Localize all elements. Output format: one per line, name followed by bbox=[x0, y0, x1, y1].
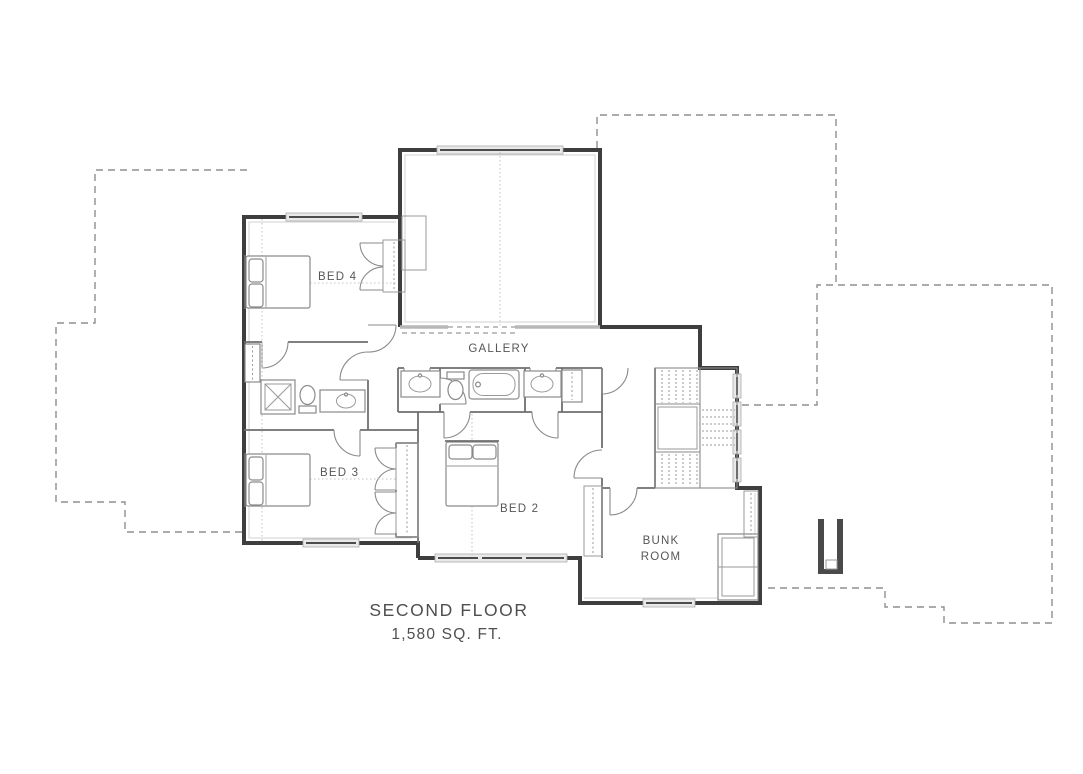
linen-closet bbox=[562, 370, 582, 402]
gallery-label: GALLERY bbox=[468, 343, 529, 355]
door-bath-linen bbox=[262, 342, 288, 368]
window-bed4 bbox=[286, 213, 362, 221]
door-hall-vestibule bbox=[602, 368, 628, 394]
vanity-sink2-icon bbox=[524, 371, 561, 397]
bunk-room-label-line2: ROOM bbox=[641, 551, 682, 563]
door-bed3-closet bbox=[375, 448, 396, 534]
bed2-label: BED 2 bbox=[500, 503, 539, 515]
door-bed2-jackjill2 bbox=[532, 412, 558, 438]
door-bed2-jackjill bbox=[444, 412, 470, 438]
staircase bbox=[655, 368, 737, 488]
room-labels: BED 4 BED 3 BED 2 GALLERY BUNK ROOM bbox=[318, 271, 681, 563]
window-bed3 bbox=[303, 539, 359, 547]
linen-closet2 bbox=[245, 344, 260, 382]
window-bunk-south bbox=[643, 599, 695, 607]
bunk-closet bbox=[744, 491, 758, 537]
bed4-label: BED 4 bbox=[318, 271, 357, 283]
title-block: SECOND FLOOR 1,580 SQ. FT. bbox=[369, 600, 528, 643]
vanity-sink3-icon bbox=[320, 390, 365, 412]
chimney bbox=[818, 519, 843, 574]
roofline-dashed bbox=[56, 115, 1052, 623]
floor-plan-canvas: BED 4 BED 3 BED 2 GALLERY BUNK ROOM SECO… bbox=[0, 0, 1083, 774]
bunk-bed-icon bbox=[718, 534, 758, 600]
bed3-closet bbox=[396, 443, 418, 537]
media-niche bbox=[402, 216, 426, 270]
bed2-closet bbox=[584, 486, 602, 556]
door-hall-bath bbox=[340, 352, 368, 380]
bed3-label: BED 3 bbox=[320, 467, 359, 479]
bed2-bed-icon bbox=[445, 441, 499, 506]
vanity-sink-icon bbox=[401, 371, 440, 397]
door-bed4 bbox=[368, 325, 396, 352]
bed3-bed-icon bbox=[245, 453, 310, 507]
floor-plan-page: BED 4 BED 3 BED 2 GALLERY BUNK ROOM SECO… bbox=[0, 0, 1083, 774]
bed4-bed-icon bbox=[245, 255, 310, 309]
toilet-icon bbox=[447, 372, 464, 400]
bunk-room-label-line1: BUNK bbox=[643, 535, 680, 547]
toilet2-icon bbox=[299, 386, 316, 414]
plan-title: SECOND FLOOR bbox=[369, 600, 528, 620]
door-bed3 bbox=[334, 430, 360, 456]
plan-subtitle: 1,580 SQ. FT. bbox=[391, 626, 502, 643]
door-bunk-entry bbox=[610, 488, 637, 515]
shower-icon bbox=[261, 380, 295, 414]
door-bed2-entry bbox=[574, 450, 602, 478]
bathtub-icon bbox=[469, 370, 519, 399]
window-bed2 bbox=[435, 554, 567, 562]
